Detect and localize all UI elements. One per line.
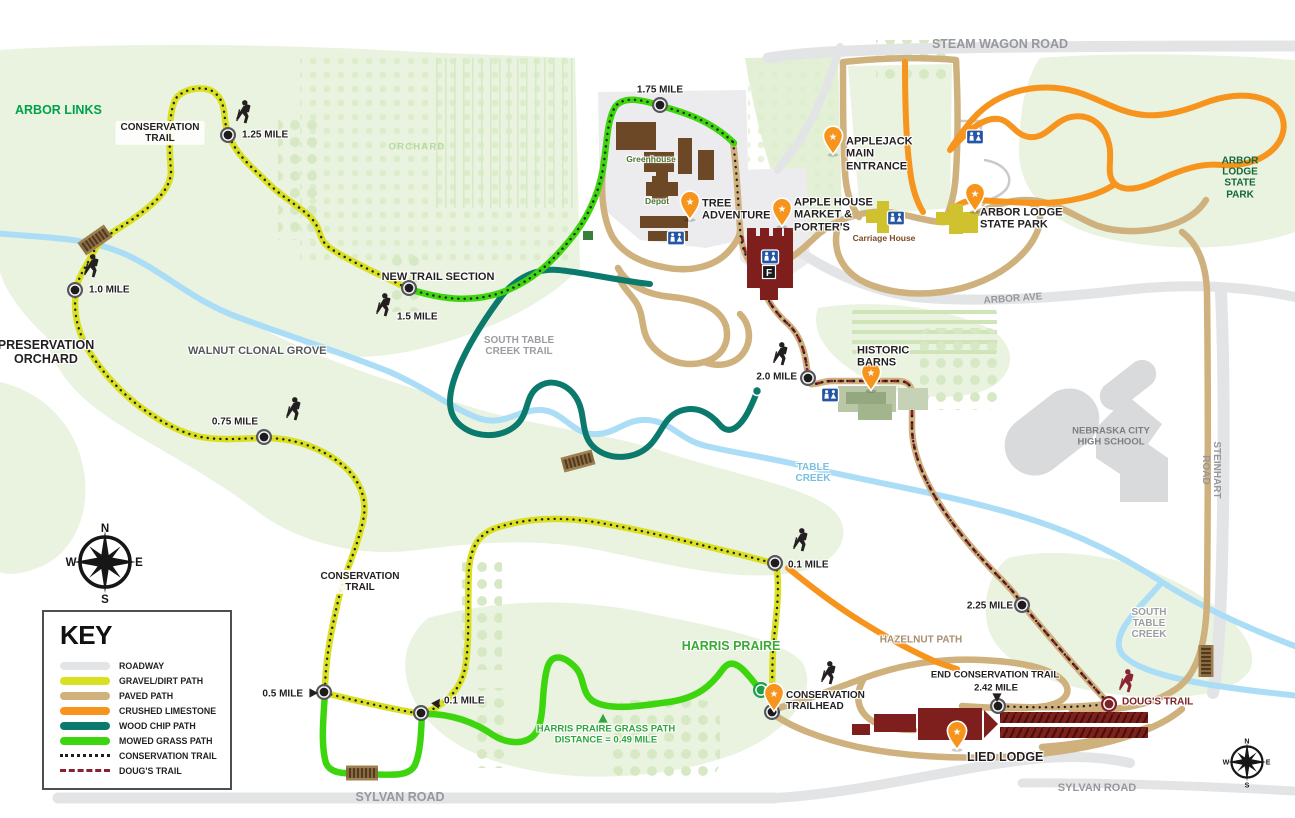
legend-swatch-wood-chip-path — [60, 722, 110, 730]
mile-marker — [767, 555, 783, 571]
legend-item-crushed-limestone: CRUSHED LIMESTONE — [60, 703, 222, 718]
legend-item-paved-path: PAVED PATH — [60, 688, 222, 703]
restroom-icon — [822, 388, 839, 402]
mile-marker — [800, 370, 816, 386]
legend-item-mowed-grass-path: MOWED GRASS PATH — [60, 733, 222, 748]
legend-label: WOOD CHIP PATH — [119, 721, 196, 731]
key-rows: ROADWAYGRAVEL/DIRT PATHPAVED PATHCRUSHED… — [60, 658, 222, 778]
legend-item-dougs-trail: DOUG'S TRAIL — [60, 763, 222, 778]
mile-marker — [652, 97, 668, 113]
bridge-icon — [346, 766, 378, 781]
legend-item-wood-chip-path: WOOD CHIP PATH — [60, 718, 222, 733]
key-title: KEY — [60, 620, 222, 651]
legend-swatch-crushed-limestone — [60, 707, 110, 715]
restroom-icon — [668, 231, 685, 245]
woodchip-trail-end-marker — [753, 387, 762, 396]
bridge-icon — [1199, 645, 1214, 677]
mile-marker — [1014, 597, 1030, 613]
mile-marker — [67, 282, 83, 298]
legend-item-gravel-dirt-path: GRAVEL/DIRT PATH — [60, 673, 222, 688]
restroom-icon — [967, 130, 984, 144]
legend-item-conservation-trail: CONSERVATION TRAIL — [60, 748, 222, 763]
dougs-trail-marker — [1101, 696, 1117, 712]
legend-label: DOUG'S TRAIL — [119, 766, 182, 776]
legend-swatch-roadway — [60, 662, 110, 670]
legend-swatch-dougs-trail — [60, 769, 110, 772]
mile-marker — [401, 280, 417, 296]
mile-marker — [413, 705, 429, 721]
legend-swatch-paved-path — [60, 692, 110, 700]
legend-label: PAVED PATH — [119, 691, 173, 701]
restroom-icon — [888, 211, 905, 225]
legend-label: CRUSHED LIMESTONE — [119, 706, 216, 716]
mile-marker — [990, 698, 1006, 714]
map-key: KEY ROADWAYGRAVEL/DIRT PATHPAVED PATHCRU… — [42, 610, 232, 790]
legend-item-roadway: ROADWAY — [60, 658, 222, 673]
mile-marker — [220, 127, 236, 143]
mile-marker — [256, 429, 272, 445]
mile-marker — [316, 684, 332, 700]
legend-swatch-gravel-dirt-path — [60, 677, 110, 685]
legend-label: MOWED GRASS PATH — [119, 736, 213, 746]
legend-label: GRAVEL/DIRT PATH — [119, 676, 203, 686]
small-green-structure — [583, 231, 593, 240]
legend-swatch-mowed-grass-path — [60, 737, 110, 745]
restroom-icon — [762, 250, 779, 264]
food-icon — [763, 266, 776, 279]
legend-label: ROADWAY — [119, 661, 164, 671]
trail-map: ★ F N — [0, 0, 1295, 818]
legend-label: CONSERVATION TRAIL — [119, 751, 217, 761]
legend-swatch-conservation-trail — [60, 754, 110, 757]
